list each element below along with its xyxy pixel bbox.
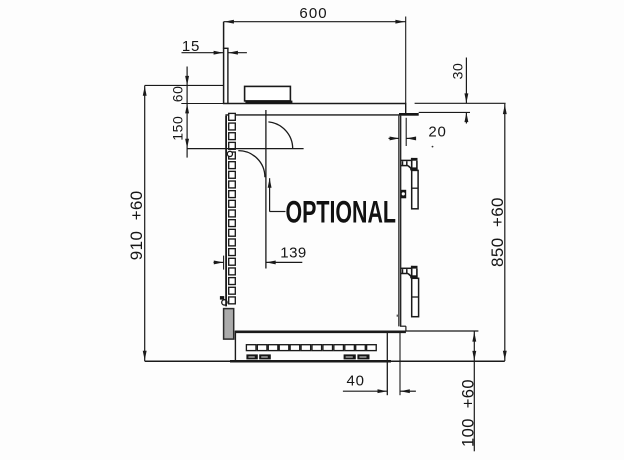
svg-text:600: 600	[299, 5, 327, 22]
svg-text:139: 139	[280, 245, 307, 262]
svg-text:15: 15	[182, 38, 200, 55]
svg-text:20: 20	[428, 123, 446, 140]
svg-text:100 +60: 100 +60	[459, 379, 477, 447]
svg-text:OPTIONAL: OPTIONAL	[286, 194, 397, 230]
svg-text:150: 150	[170, 116, 186, 141]
svg-text:40: 40	[346, 373, 364, 390]
svg-text:30: 30	[449, 63, 465, 80]
svg-text:910 +60: 910 +60	[127, 190, 146, 260]
svg-text:60: 60	[170, 86, 186, 103]
svg-text:850 +60: 850 +60	[488, 197, 507, 267]
